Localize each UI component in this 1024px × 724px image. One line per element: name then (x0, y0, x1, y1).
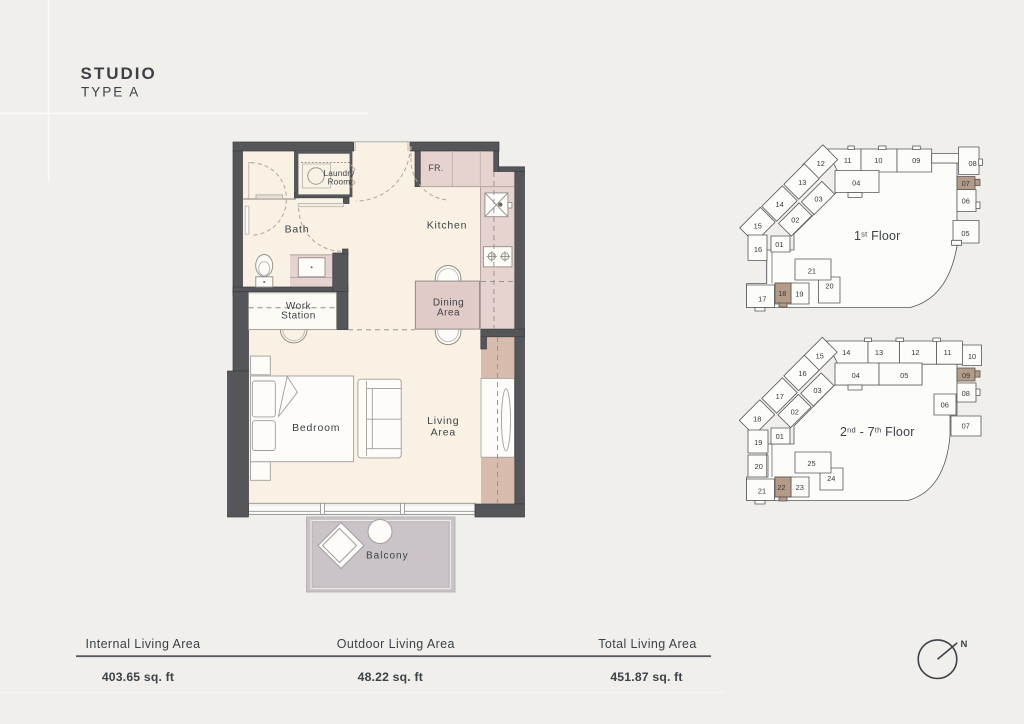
svg-text:17: 17 (776, 392, 784, 401)
svg-text:12: 12 (817, 159, 825, 168)
svg-text:Bedroom: Bedroom (292, 422, 340, 434)
svg-text:06: 06 (962, 197, 970, 206)
svg-text:08: 08 (968, 159, 976, 168)
svg-text:13: 13 (875, 348, 883, 357)
svg-text:11: 11 (844, 156, 852, 165)
svg-text:02: 02 (791, 216, 799, 225)
svg-text:01: 01 (775, 240, 783, 249)
svg-text:24: 24 (827, 474, 835, 483)
svg-text:19: 19 (795, 290, 803, 299)
svg-text:Room: Room (328, 177, 351, 186)
svg-text:23: 23 (796, 483, 804, 492)
svg-text:18: 18 (753, 415, 761, 424)
svg-text:05: 05 (961, 229, 969, 238)
svg-text:451.87 sq. ft: 451.87 sq. ft (610, 670, 682, 684)
svg-text:403.65 sq. ft: 403.65 sq. ft (102, 670, 174, 684)
svg-text:Kitchen: Kitchen (427, 220, 468, 232)
svg-text:03: 03 (813, 386, 821, 395)
svg-text:STUDIO: STUDIO (81, 64, 157, 83)
svg-text:19: 19 (754, 438, 762, 447)
svg-text:10: 10 (874, 156, 882, 165)
svg-text:21: 21 (808, 266, 816, 275)
svg-text:14: 14 (842, 348, 850, 357)
svg-text:12: 12 (911, 348, 919, 357)
svg-text:Living: Living (427, 415, 459, 427)
svg-text:TYPE A: TYPE A (81, 85, 140, 100)
svg-text:05: 05 (900, 371, 908, 380)
svg-text:17: 17 (758, 295, 766, 304)
svg-text:11: 11 (944, 348, 952, 357)
svg-text:04: 04 (852, 179, 860, 188)
svg-text:16: 16 (798, 369, 806, 378)
svg-text:Balcony: Balcony (366, 551, 409, 562)
svg-text:Area: Area (437, 307, 460, 318)
svg-text:Internal Living Area: Internal Living Area (85, 637, 200, 651)
svg-text:15: 15 (816, 352, 824, 361)
svg-text:Total Living Area: Total Living Area (598, 637, 697, 651)
svg-text:09: 09 (962, 371, 970, 380)
svg-text:06: 06 (941, 400, 949, 409)
svg-text:Station: Station (281, 310, 316, 321)
svg-text:Outdoor Living Area: Outdoor Living Area (337, 637, 455, 651)
svg-text:01: 01 (776, 432, 784, 441)
svg-text:07: 07 (962, 421, 970, 430)
svg-text:25: 25 (807, 459, 815, 468)
svg-text:04: 04 (852, 371, 860, 380)
svg-text:Area: Area (431, 427, 456, 439)
svg-text:1st Floor: 1st Floor (854, 229, 901, 243)
svg-text:18: 18 (778, 289, 786, 298)
svg-text:N: N (961, 639, 968, 650)
svg-text:20: 20 (755, 462, 763, 471)
svg-text:02: 02 (791, 408, 799, 417)
svg-text:13: 13 (798, 178, 806, 187)
svg-text:Bath: Bath (285, 224, 310, 236)
svg-text:07: 07 (962, 179, 970, 188)
svg-text:FR.: FR. (428, 163, 443, 173)
svg-text:09: 09 (912, 156, 920, 165)
svg-text:03: 03 (814, 195, 822, 204)
svg-text:22: 22 (777, 483, 785, 492)
svg-text:10: 10 (968, 352, 976, 361)
svg-text:14: 14 (775, 200, 783, 209)
svg-text:20: 20 (825, 281, 833, 290)
svg-text:08: 08 (962, 389, 970, 398)
svg-text:16: 16 (754, 245, 762, 254)
svg-text:48.22 sq. ft: 48.22 sq. ft (358, 670, 423, 684)
svg-text:15: 15 (754, 222, 762, 231)
svg-text:21: 21 (758, 487, 766, 496)
